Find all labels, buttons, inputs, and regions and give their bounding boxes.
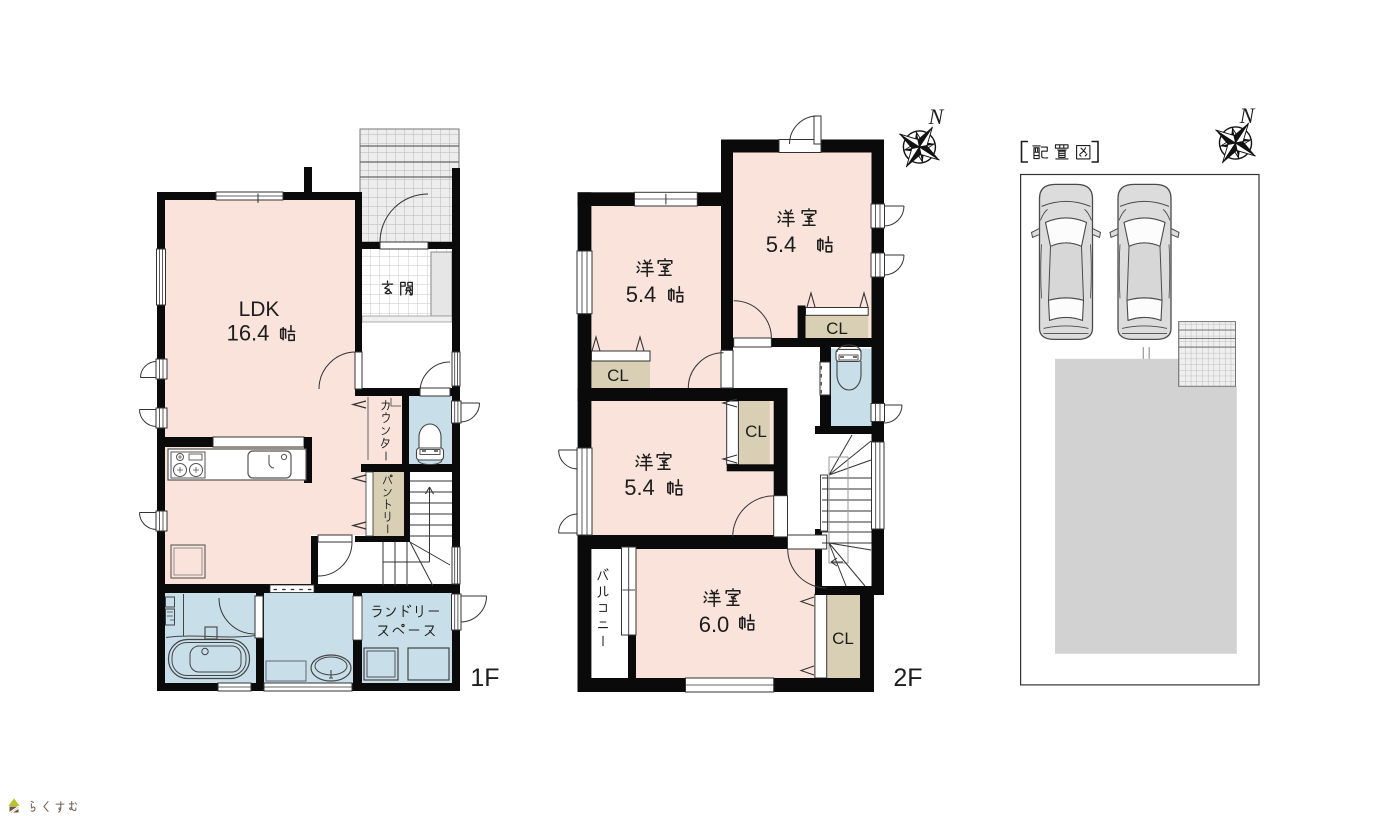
svg-text:1F: 1F: [470, 664, 499, 692]
svg-text:5.4: 5.4: [626, 282, 657, 307]
svg-text:2F: 2F: [893, 664, 922, 692]
svg-text:5.4: 5.4: [624, 475, 655, 500]
svg-text:16.4: 16.4: [227, 321, 270, 346]
svg-text:CL: CL: [826, 319, 848, 338]
svg-text:6.0: 6.0: [699, 612, 730, 637]
svg-text:LDK: LDK: [239, 298, 280, 321]
svg-text:N: N: [1239, 103, 1256, 128]
svg-text:N: N: [928, 104, 945, 129]
svg-text:CL: CL: [745, 422, 767, 441]
svg-text:CL: CL: [607, 366, 629, 385]
svg-text:5.4: 5.4: [766, 232, 797, 257]
svg-text:CL: CL: [832, 629, 854, 648]
